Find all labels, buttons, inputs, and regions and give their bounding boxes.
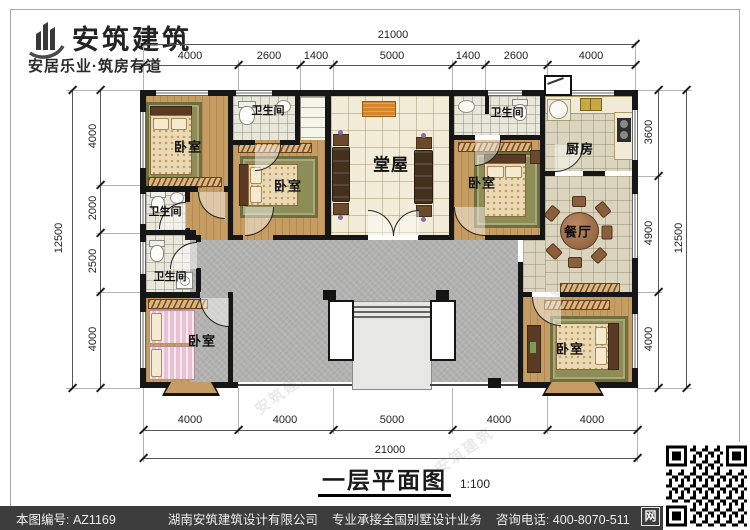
window: [140, 112, 146, 168]
stove: [617, 118, 631, 142]
sofa: [414, 150, 433, 204]
wall: [280, 140, 300, 145]
room-label-bedroom: 卧室: [174, 137, 202, 156]
pillar: [436, 290, 449, 300]
window: [156, 90, 208, 96]
qr-code: [663, 442, 750, 530]
dim-label: 4900: [643, 203, 655, 263]
dim-line-right-segments: [658, 90, 659, 388]
ext-line: [96, 233, 140, 234]
ext-line: [96, 185, 140, 186]
wall: [540, 96, 545, 240]
pillow: [151, 349, 162, 377]
wall: [418, 235, 454, 240]
pillar: [323, 290, 336, 300]
dim-label: 5000: [362, 414, 422, 426]
ext-line: [66, 90, 140, 91]
entry-path: [352, 301, 432, 390]
dresser-decor: [530, 342, 536, 353]
wall: [331, 235, 368, 240]
dim-line-top-segments: [143, 65, 635, 66]
dim-line-bottom-segments: [143, 430, 637, 431]
window: [140, 242, 146, 274]
wall: [273, 235, 325, 240]
wash-basin: [458, 100, 475, 113]
window: [140, 312, 146, 368]
ext-line: [96, 292, 140, 293]
wall: [518, 262, 523, 382]
dim-label: 4000: [160, 414, 220, 426]
doormat: [362, 101, 396, 117]
kitchen-round-table: [549, 100, 568, 119]
wall: [545, 171, 555, 176]
title-block: 一层平面图1:100: [318, 461, 490, 495]
plant: [338, 215, 343, 220]
room-label-hall: 堂屋: [373, 151, 409, 176]
pillow: [151, 313, 162, 341]
bay-window-glass: [165, 382, 217, 393]
window: [236, 90, 272, 96]
room-label-bathroom: 卫生间: [252, 102, 285, 118]
company-full-name: 湖南安筑建筑设计有限公司: [168, 509, 318, 528]
window: [632, 110, 638, 160]
dining-chair: [602, 226, 613, 240]
dim-label: 2600: [486, 50, 546, 62]
window: [568, 90, 614, 96]
dim-label: 4000: [87, 106, 99, 166]
room-label-bathroom: 卫生间: [491, 104, 524, 120]
window: [632, 314, 638, 368]
phone-number: 咨询电话: 400-8070-511: [496, 509, 630, 528]
side-table: [333, 203, 349, 215]
bed-headboard: [608, 323, 619, 370]
room-label-bedroom: 卧室: [188, 331, 216, 350]
footer-bar: 本图编号: AZ1169 湖南安筑建筑设计有限公司 专业承接全国别墅设计业务 咨…: [0, 506, 750, 530]
plant: [421, 133, 426, 138]
entry-steps: [352, 311, 430, 313]
dim-line-bottom-total: [143, 458, 637, 459]
pillow: [595, 327, 607, 345]
dim-label: 4000: [469, 414, 529, 426]
dim-label: 4000: [643, 309, 655, 369]
room-label-bedroom: 卧室: [468, 173, 496, 192]
dining-chair: [568, 257, 582, 268]
wall: [583, 171, 605, 176]
dim-label: 4000: [561, 50, 621, 62]
window: [488, 90, 522, 96]
wall: [518, 292, 532, 297]
wall: [228, 186, 233, 235]
pillar: [488, 378, 501, 388]
dim-line-top-total: [143, 44, 635, 45]
ext-line: [637, 388, 638, 462]
wall: [228, 140, 255, 145]
company-logo-icon: [22, 13, 70, 61]
web-badge: 网: [641, 507, 660, 526]
room-label-bathroom: 卫生间: [154, 268, 187, 284]
room-label-bedroom: 卧室: [556, 339, 584, 358]
dim-line-left-total: [72, 90, 73, 388]
pillow: [153, 118, 169, 130]
dim-label: 4000: [160, 50, 220, 62]
side-table: [333, 134, 349, 146]
plan-scale: 1:100: [460, 477, 490, 491]
drawing-number: 本图编号: AZ1169: [16, 509, 116, 528]
room-dining-ext: [523, 240, 545, 292]
dim-label: 5000: [362, 50, 422, 62]
dim-label: 4000: [87, 309, 99, 369]
wall: [228, 235, 243, 240]
window: [632, 194, 638, 258]
plan-title: 一层平面图: [318, 467, 451, 497]
window: [140, 194, 146, 224]
entry-steps: [352, 316, 430, 318]
sofa: [332, 147, 350, 202]
wall: [449, 96, 454, 240]
dim-label: 12500: [673, 208, 685, 268]
pillow: [171, 118, 187, 130]
pillow: [595, 347, 607, 365]
dim-label: 21000: [340, 444, 440, 456]
wall: [185, 186, 190, 202]
pillow: [505, 166, 522, 178]
drawing-sheet: 安筑建筑 安居乐业·筑房有道 安筑建筑 安筑建筑 安筑建筑 安筑建筑 安筑建筑 …: [0, 0, 750, 530]
side-table: [416, 137, 432, 149]
porch-column: [430, 300, 456, 361]
service-text: 专业承接全国别墅设计业务: [332, 509, 482, 528]
toilet: [150, 245, 164, 262]
wall: [454, 135, 475, 140]
wall: [196, 268, 201, 292]
dim-label: 2500: [87, 231, 99, 291]
dim-label: 21000: [343, 29, 443, 41]
dining-chair: [572, 196, 586, 207]
bay-window-glass: [545, 382, 601, 393]
room-label-bedroom: 卧室: [274, 176, 302, 195]
pillow: [250, 186, 262, 203]
wall: [500, 135, 544, 140]
wall: [485, 96, 489, 114]
porch-column: [328, 300, 354, 361]
dim-line-left-segments: [100, 90, 101, 388]
wall: [325, 96, 331, 240]
wall: [140, 292, 200, 298]
dim-label: 3600: [643, 102, 655, 162]
plant: [421, 217, 426, 222]
room-label-dining: 餐厅: [564, 222, 592, 241]
kitchen-sink: [580, 98, 602, 111]
entry-steps: [352, 306, 430, 308]
wall: [485, 235, 545, 240]
wardrobe: [148, 299, 208, 309]
dim-label: 4000: [562, 414, 622, 426]
wall: [560, 292, 632, 297]
wall: [295, 96, 300, 140]
room-label-kitchen: 厨房: [566, 139, 594, 158]
porch-edge: [430, 384, 523, 386]
dim-label: 12500: [53, 208, 65, 268]
plant: [338, 130, 343, 135]
ext-line: [66, 388, 140, 389]
ext-line: [143, 388, 144, 462]
floor-plan: 卧室 卫生间 卧室 堂屋 卫生间 卧室 厨房 餐厅 卫生间 卫生间 卧室 卧室: [140, 90, 638, 388]
dim-label: 4000: [255, 414, 315, 426]
dim-line-right-total: [686, 90, 687, 388]
closet: [300, 96, 327, 142]
wall: [185, 235, 201, 240]
room-label-bathroom: 卫生间: [149, 203, 182, 219]
